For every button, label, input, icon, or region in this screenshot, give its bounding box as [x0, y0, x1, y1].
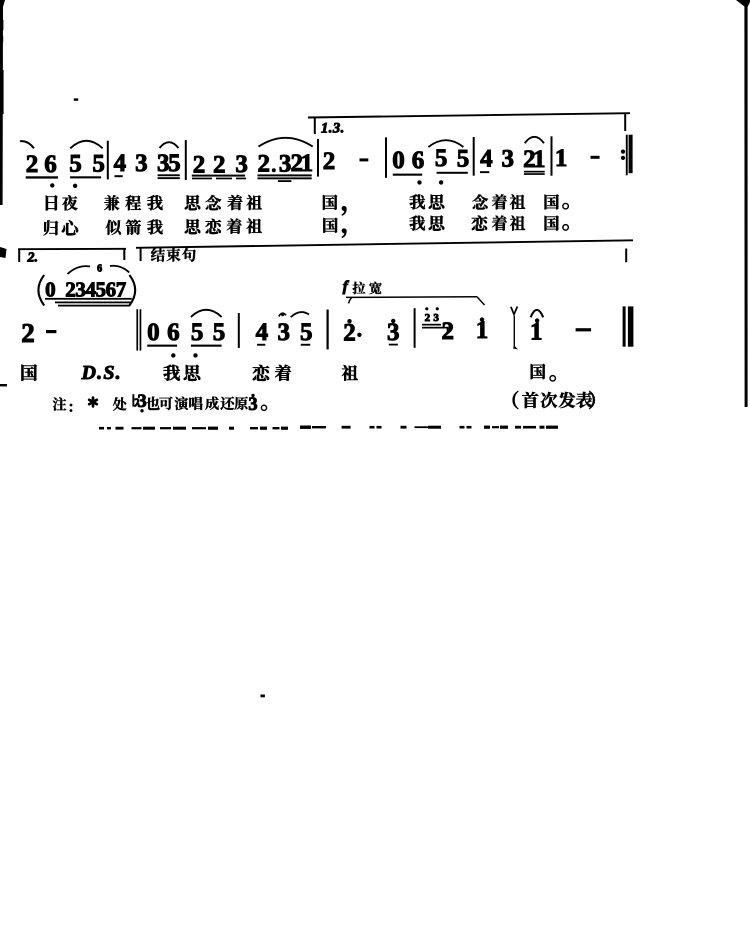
svg-text:3: 3	[137, 392, 146, 412]
svg-text:5: 5	[300, 319, 313, 346]
svg-text:1: 1	[530, 318, 543, 345]
svg-text:4: 4	[480, 145, 493, 172]
svg-text:2: 2	[193, 151, 206, 178]
svg-text:1: 1	[301, 150, 314, 177]
svg-text:2.: 2.	[27, 250, 39, 265]
svg-text:2: 2	[425, 312, 431, 324]
svg-text:3: 3	[248, 395, 257, 415]
svg-text:2: 2	[26, 151, 39, 178]
svg-text:2: 2	[21, 318, 35, 348]
svg-text:2: 2	[323, 148, 336, 175]
svg-text:0: 0	[147, 319, 160, 346]
svg-text:1: 1	[533, 146, 546, 173]
svg-text:3: 3	[501, 145, 514, 172]
svg-text:5: 5	[92, 150, 105, 177]
svg-text:6: 6	[44, 151, 57, 178]
svg-text:5: 5	[191, 319, 204, 346]
svg-text:3: 3	[277, 319, 290, 346]
svg-text:6: 6	[167, 319, 180, 346]
svg-text:2: 2	[442, 318, 455, 345]
svg-text:6: 6	[97, 264, 102, 275]
svg-text:D.S.: D.S.	[81, 362, 122, 384]
svg-text:4: 4	[114, 150, 127, 177]
svg-text:5: 5	[457, 145, 470, 172]
svg-text:f: f	[343, 279, 350, 295]
svg-text:5: 5	[168, 150, 181, 177]
svg-text:6: 6	[412, 147, 425, 174]
svg-text:5: 5	[213, 319, 226, 346]
svg-text:1.3.: 1.3.	[321, 120, 345, 136]
svg-text:2: 2	[343, 320, 356, 347]
svg-text:5: 5	[435, 145, 448, 172]
svg-text:2: 2	[213, 151, 226, 178]
svg-text:0: 0	[392, 147, 405, 174]
svg-text:5: 5	[69, 150, 82, 177]
svg-text:1: 1	[555, 145, 568, 172]
svg-text:3: 3	[135, 150, 148, 177]
svg-text:3: 3	[235, 151, 248, 178]
svg-text:4: 4	[256, 319, 269, 346]
svg-text:2: 2	[258, 151, 271, 178]
svg-text:3: 3	[433, 312, 439, 324]
